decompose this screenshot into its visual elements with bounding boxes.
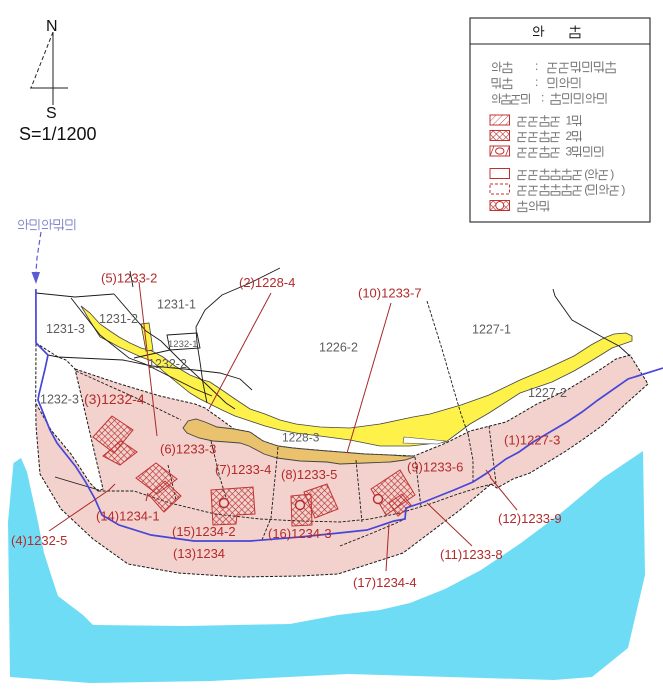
svg-text:1227-2: 1227-2	[528, 386, 567, 400]
svg-text:1231-2: 1231-2	[99, 312, 138, 326]
svg-text:(1)1227-3: (1)1227-3	[504, 433, 560, 448]
svg-text:1: 1	[562, 114, 572, 128]
svg-text:1232-2: 1232-2	[148, 357, 187, 371]
svg-text:1232-3: 1232-3	[40, 393, 79, 407]
svg-text:N: N	[46, 18, 58, 35]
svg-text:(2)1228-4: (2)1228-4	[239, 275, 295, 290]
svg-text:(12)1233-9: (12)1233-9	[498, 511, 562, 526]
svg-text:1232-1: 1232-1	[168, 339, 198, 350]
svg-text:1231-1: 1231-1	[157, 298, 196, 312]
svg-text:(16)1234-3: (16)1234-3	[268, 526, 332, 541]
svg-text:2: 2	[562, 129, 572, 143]
svg-text:(8)1233-5: (8)1233-5	[281, 467, 337, 482]
svg-text:S=1/1200: S=1/1200	[19, 124, 97, 144]
svg-text:S: S	[46, 105, 57, 122]
svg-text:): )	[621, 183, 625, 197]
svg-text:3: 3	[562, 145, 572, 159]
svg-text:1227-1: 1227-1	[472, 323, 511, 337]
svg-text:(14)1234-1: (14)1234-1	[96, 509, 160, 524]
svg-text:(6)1233-3: (6)1233-3	[160, 442, 216, 457]
svg-text:1231-3: 1231-3	[46, 322, 85, 336]
svg-text:1226-2: 1226-2	[319, 341, 358, 355]
svg-text:(: (	[584, 183, 588, 197]
svg-text:(15)1234-2: (15)1234-2	[172, 524, 236, 539]
svg-text:(5)1233-2: (5)1233-2	[101, 271, 157, 286]
svg-text:(: (	[584, 167, 588, 181]
svg-text:(13)1234: (13)1234	[173, 546, 225, 561]
svg-text:(17)1234-4: (17)1234-4	[353, 575, 417, 590]
svg-text:): )	[610, 167, 614, 181]
svg-text::: :	[535, 59, 538, 73]
svg-text:(11)1233-8: (11)1233-8	[440, 547, 503, 562]
svg-text::: :	[535, 75, 538, 89]
svg-text:(10)1233-7: (10)1233-7	[358, 286, 422, 301]
svg-text:(3)1232-4: (3)1232-4	[84, 391, 145, 407]
svg-text:(7)1233-4: (7)1233-4	[215, 462, 271, 477]
svg-text:(4)1232-5: (4)1232-5	[11, 533, 67, 548]
svg-text:1228-3: 1228-3	[282, 431, 320, 445]
svg-text::: :	[541, 91, 544, 105]
svg-text:(9)1233-6: (9)1233-6	[407, 460, 463, 475]
